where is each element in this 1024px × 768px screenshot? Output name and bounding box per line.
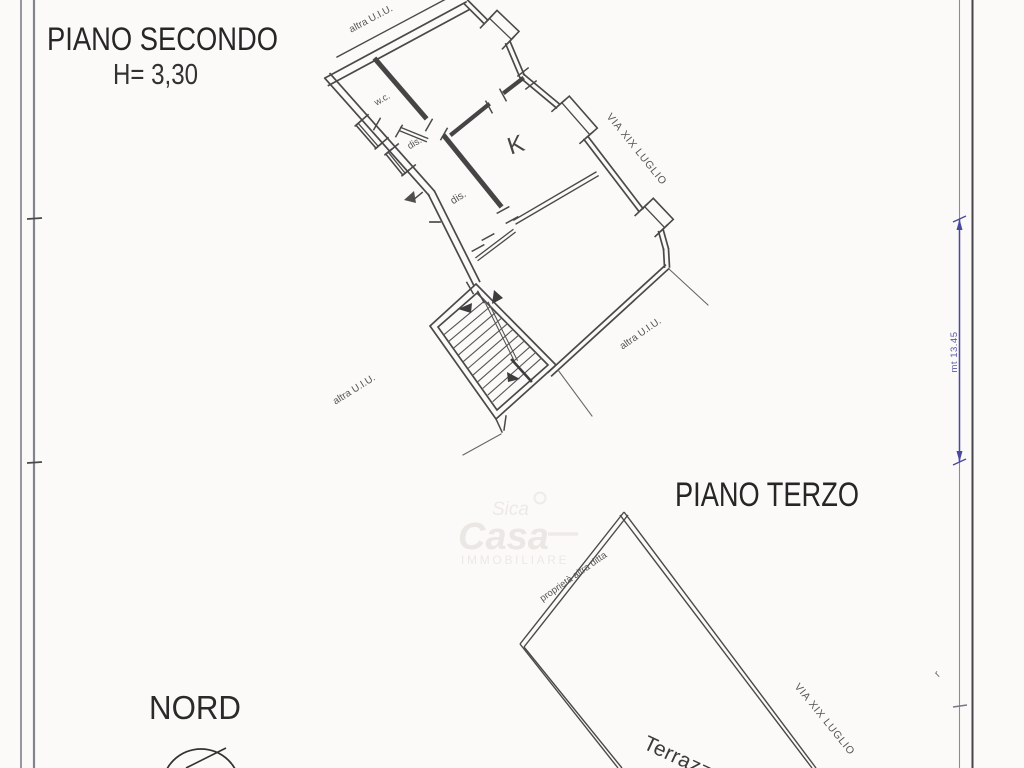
svg-text:PIANO SECONDO: PIANO SECONDO bbox=[47, 21, 278, 57]
svg-text:mt 13.45: mt 13.45 bbox=[949, 332, 960, 373]
svg-text:NORD: NORD bbox=[149, 689, 241, 726]
svg-text:PIANO TERZO: PIANO TERZO bbox=[675, 476, 859, 514]
svg-text:IMMOBILIARE: IMMOBILIARE bbox=[461, 553, 569, 567]
svg-text:Casa: Casa bbox=[458, 516, 549, 558]
svg-text:H= 3,30: H= 3,30 bbox=[113, 59, 198, 91]
